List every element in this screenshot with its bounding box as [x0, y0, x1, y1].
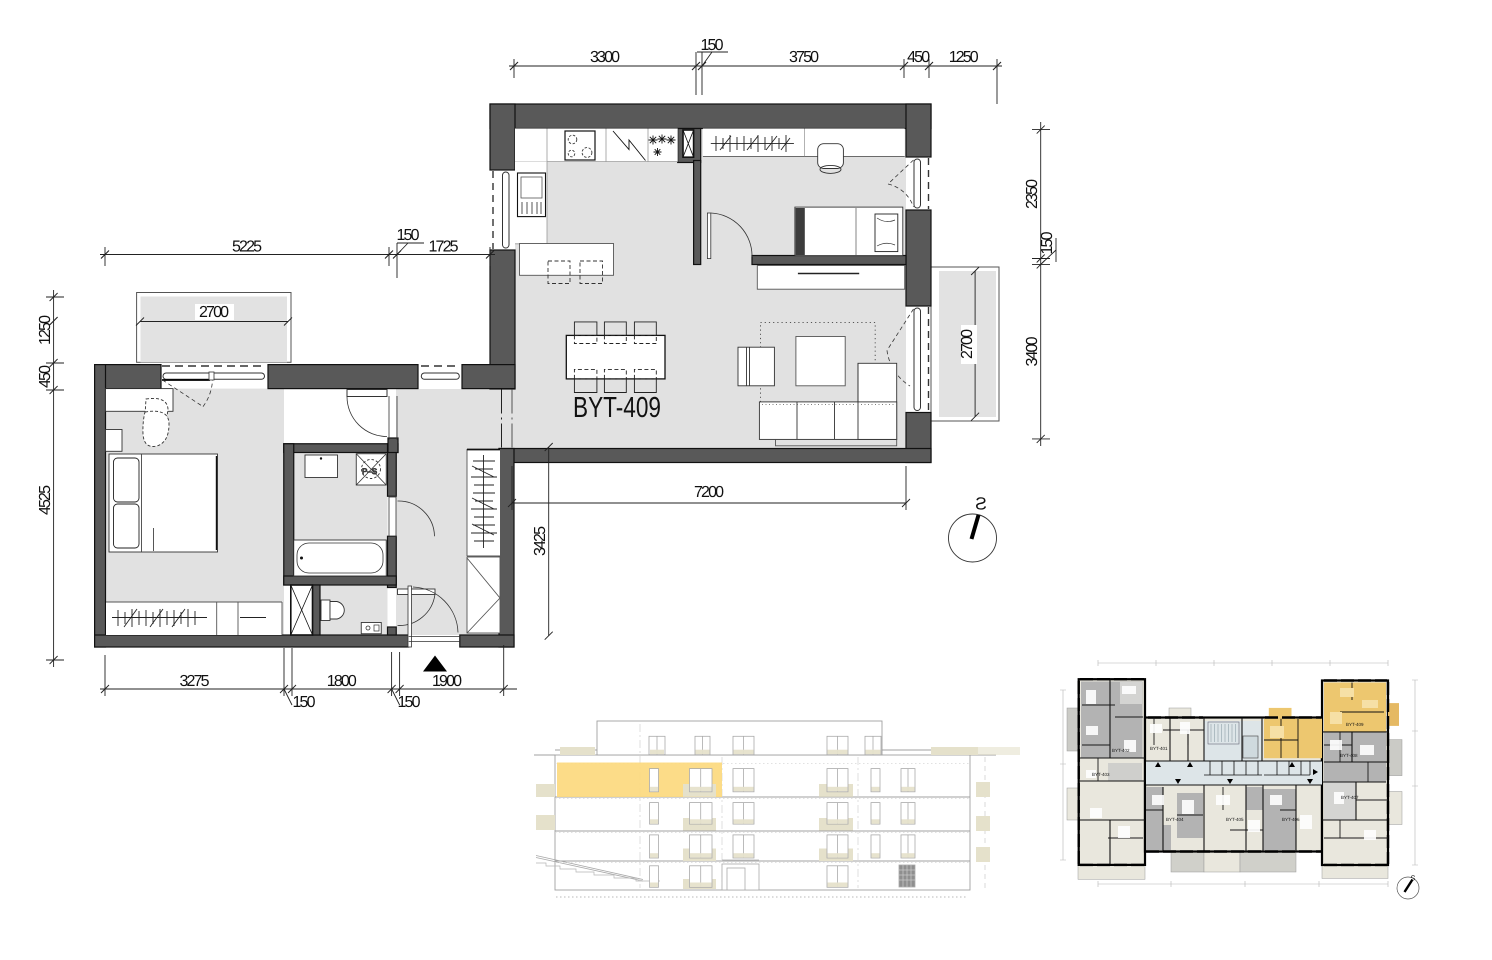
- svg-text:S: S: [1410, 874, 1415, 881]
- svg-text:1250: 1250: [37, 315, 54, 345]
- svg-text:2700: 2700: [959, 329, 976, 359]
- svg-text:5225: 5225: [232, 239, 262, 256]
- svg-text:P–S: P–S: [362, 467, 377, 476]
- svg-text:3400: 3400: [1024, 336, 1041, 366]
- svg-text:150: 150: [701, 37, 724, 54]
- svg-text:4525: 4525: [37, 485, 54, 515]
- svg-text:150: 150: [1039, 231, 1056, 254]
- svg-text:450: 450: [37, 365, 54, 388]
- svg-text:1725: 1725: [429, 239, 459, 256]
- svg-text:BYT-405: BYT-405: [1226, 817, 1244, 822]
- svg-text:3275: 3275: [180, 673, 210, 690]
- svg-text:150: 150: [397, 227, 420, 244]
- svg-text:150: 150: [398, 694, 421, 711]
- svg-text:1800: 1800: [327, 673, 357, 690]
- svg-text:BYT-409: BYT-409: [573, 392, 661, 424]
- svg-text:150: 150: [293, 694, 316, 711]
- svg-text:2350: 2350: [1024, 179, 1041, 209]
- svg-text:BYT-409: BYT-409: [1346, 722, 1364, 727]
- svg-text:3750: 3750: [789, 49, 819, 66]
- svg-text:BYT-407: BYT-407: [1341, 795, 1359, 800]
- svg-text:S: S: [975, 494, 987, 514]
- svg-text:3425: 3425: [532, 526, 549, 556]
- svg-text:7200: 7200: [694, 484, 724, 501]
- svg-text:BYT-402: BYT-402: [1112, 748, 1130, 753]
- svg-text:BYT-404: BYT-404: [1166, 817, 1184, 822]
- svg-text:3300: 3300: [590, 49, 620, 66]
- svg-text:BYT-403: BYT-403: [1092, 772, 1110, 777]
- svg-text:1250: 1250: [949, 49, 979, 66]
- svg-text:450: 450: [907, 49, 930, 66]
- svg-text:BYT-401: BYT-401: [1150, 746, 1168, 751]
- svg-text:2700: 2700: [199, 304, 229, 321]
- svg-text:BYT-408: BYT-408: [1340, 753, 1358, 758]
- svg-text:BYT-406: BYT-406: [1282, 817, 1300, 822]
- svg-text:1900: 1900: [432, 673, 462, 690]
